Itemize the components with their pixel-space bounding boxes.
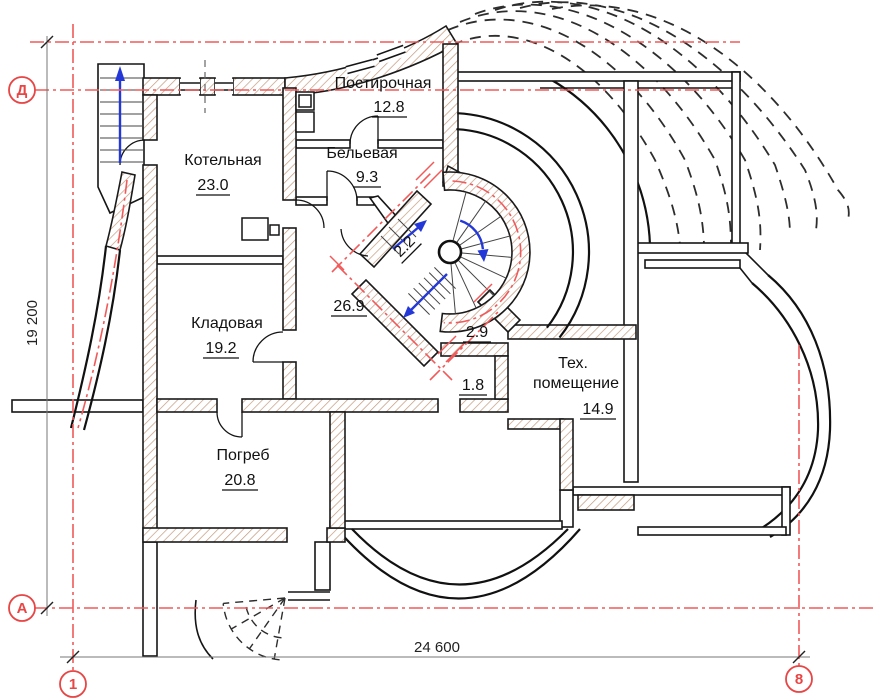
- room-area-hall: 26.9: [333, 298, 364, 315]
- room-area-linen: 9.3: [356, 169, 378, 186]
- wall-tech-left: [560, 419, 573, 490]
- room-area-tech: 14.9: [582, 401, 613, 418]
- room-area-closet: 1.8: [462, 377, 484, 394]
- room-area-laundry: 12.8: [373, 99, 404, 116]
- wall-left-upper: [143, 95, 157, 140]
- flight-down-arrow: [410, 274, 447, 311]
- wall-tech-top: [508, 325, 636, 339]
- terrace-bottom-arc-outer: [337, 529, 580, 599]
- room-name-cellar: Погреб: [216, 447, 269, 464]
- room-name-tech-1: Тех.: [558, 355, 588, 372]
- room-area-landing: 2.9: [466, 324, 488, 341]
- wall-cellar-bottom-b: [327, 528, 345, 542]
- wall-bottom-right: [573, 487, 790, 495]
- terrace-bottom-arc-inner: [352, 529, 568, 585]
- wall-axis-d-pier: [200, 78, 215, 95]
- dim-height-label: 19 200: [24, 300, 41, 346]
- stair-exterior-bottom-dashed: [195, 592, 330, 660]
- wall-top-right: [457, 72, 740, 81]
- wall-cellar-right: [330, 412, 345, 528]
- hatched-walls: [106, 26, 636, 542]
- dim-width-label: 24 600: [414, 639, 460, 656]
- wall-below-cellar: [143, 542, 157, 656]
- room-name-tech-2: помещение: [533, 375, 619, 392]
- wall-tech-step: [508, 419, 563, 429]
- door-cellar: [217, 412, 242, 437]
- axis-label-8: 8: [795, 671, 803, 688]
- partition-boiler-storage: [157, 256, 283, 264]
- spiral-column: [439, 241, 461, 263]
- room-area-boiler: 23.0: [197, 177, 228, 194]
- axis-label-d: Д: [17, 82, 28, 99]
- wall-boiler-right-a: [283, 88, 296, 200]
- wall-cellar-top-a: [157, 399, 217, 412]
- straight-flight-treads: [408, 267, 455, 314]
- wall-right-room-top: [628, 243, 748, 253]
- fan-solid-edge: [195, 600, 213, 659]
- wall-laundry-right: [443, 44, 458, 186]
- spiral-arrow: [460, 221, 483, 250]
- wall-cellar-top-b: [242, 399, 438, 412]
- room-area-storage: 19.2: [205, 340, 236, 357]
- wall-axis-d-b: [233, 78, 285, 95]
- window-axis-d-1: [180, 79, 200, 94]
- laundry-unit: [296, 112, 314, 132]
- floor-plan-drawing: 19 200 24 600 Д А 1 8 Котельная 23.0 Пос…: [0, 0, 887, 700]
- room-area-cellar: 20.8: [224, 472, 255, 489]
- boiler-unit: [242, 218, 268, 240]
- wall-left-main: [143, 165, 157, 540]
- axis-label-1: 1: [69, 676, 77, 693]
- wall-nook-top: [441, 343, 508, 356]
- room-name-boiler: Котельная: [184, 152, 261, 169]
- floor-plan-page: 19 200 24 600 Д А 1 8 Котельная 23.0 Пос…: [0, 0, 887, 700]
- axis-label-a: А: [17, 600, 28, 617]
- room-name-linen: Бельевая: [326, 145, 397, 162]
- wall-bc-room-bottom: [330, 521, 562, 529]
- wall-right-upper: [732, 72, 740, 247]
- room-name-laundry: Постирочная: [335, 75, 432, 92]
- axis-diag-lower: [337, 265, 452, 380]
- wall-cellar-top-c: [460, 399, 508, 412]
- wall-boiler-right-b: [283, 228, 296, 330]
- door-laundry: [350, 116, 378, 144]
- wall-bottom-right-block: [578, 495, 634, 510]
- door-storage: [253, 332, 283, 362]
- wall-nook-side: [495, 356, 508, 399]
- window-axis-d-2: [215, 79, 233, 94]
- door-linen: [327, 171, 357, 201]
- wall-cellar-bottom-a: [143, 528, 287, 542]
- wall-axis-d-a: [143, 78, 180, 95]
- wall-mid-vertical: [624, 81, 638, 482]
- room-name-storage: Кладовая: [191, 315, 263, 332]
- wall-boiler-right-c: [283, 362, 296, 399]
